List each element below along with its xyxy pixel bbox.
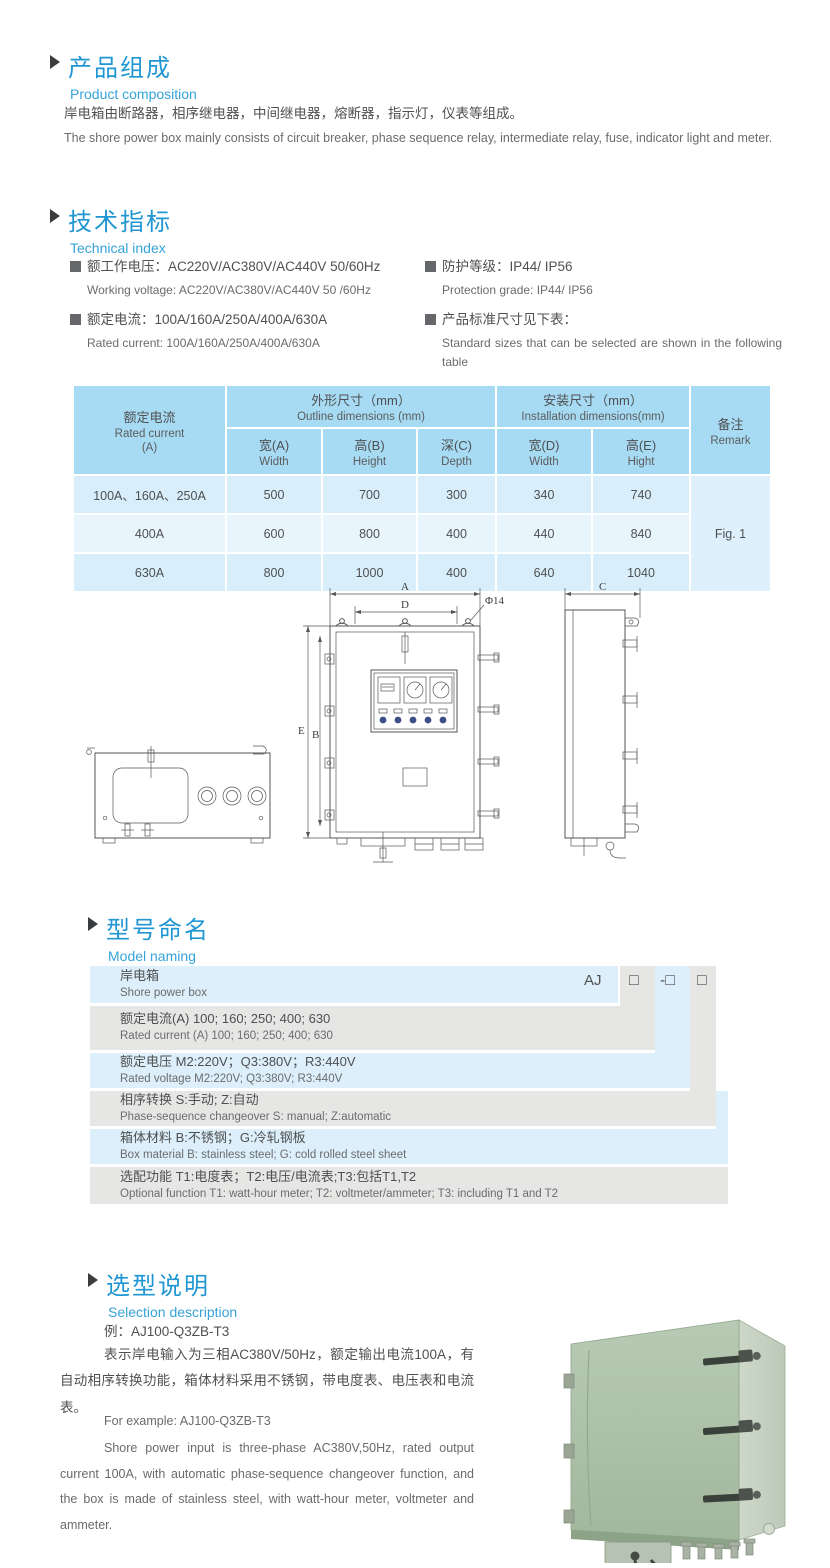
bottom-tray xyxy=(605,1542,671,1563)
cell-width-a: 500 xyxy=(227,476,321,513)
model-row-rated-current: 额定电流(A) 100; 160; 250; 400; 630 Rated cu… xyxy=(90,1006,647,1050)
cell-current: 400A xyxy=(74,515,225,552)
dim-label-D: D xyxy=(401,599,409,611)
section-selection-description-header: 选型说明 Selection description xyxy=(88,1266,237,1320)
cell-height-e: 740 xyxy=(593,476,689,513)
header-outline-dimensions: 外形尺寸（mm） Outline dimensions (mm) xyxy=(227,386,495,427)
section-arrow-icon xyxy=(88,1273,98,1287)
header-rated-current: 额定电流 Rated current (A) xyxy=(74,386,225,474)
model-row-phase-changeover: 相序转换 S:手动; Z:自动 Phase-sequence changeove… xyxy=(90,1091,716,1126)
instrument-panel xyxy=(371,670,457,732)
section-arrow-icon xyxy=(50,55,60,69)
outline-drawing-figure: A D Φ14 xyxy=(65,578,765,888)
model-row-box-material: 箱体材料 B:不锈钢；G:冷轧钢板 Box material B: stainl… xyxy=(90,1129,728,1164)
square-bullet-icon xyxy=(70,314,81,325)
section-model-naming-header: 型号命名 Model naming xyxy=(88,910,210,964)
latch-marks xyxy=(478,653,499,818)
cell-width-a: 600 xyxy=(227,515,321,552)
bottom-knob xyxy=(631,1552,640,1561)
shore-power-box-photo xyxy=(543,1298,828,1563)
technical-drawing: A D Φ14 xyxy=(65,578,765,893)
composition-body-en: The shore power box mainly consists of c… xyxy=(64,129,784,148)
section-arrow-icon xyxy=(50,209,60,223)
catalog-page: 产品组成 Product composition 岸电箱由断路器，相序继电器，中… xyxy=(0,0,830,1568)
dim-label-B: B xyxy=(312,729,319,741)
bottom-fittings-front xyxy=(337,832,483,862)
dimensions-table: 额定电流 Rated current (A) 外形尺寸（mm） Outline … xyxy=(72,384,772,593)
spec-zh-text: 额定电流：100A/160A/250A/400A/630A xyxy=(87,312,327,327)
spec-en-text: Working voltage: AC220V/AC380V/AC440V 50… xyxy=(87,281,430,300)
selection-example-zh: 例：AJ100-Q3ZB-T3 xyxy=(104,1320,229,1340)
spec-zh-text: 防护等级：IP44/ IP56 xyxy=(442,259,573,274)
section-technical-index-header: 技术指标 Technical index xyxy=(50,202,172,256)
header-height-b: 高(B)Height xyxy=(323,429,416,474)
table-row: 400A 600 800 400 440 840 xyxy=(74,515,770,552)
dim-label-A: A xyxy=(401,581,409,593)
model-naming-table: 岸电箱 Shore power box 额定电流(A) 100; 160; 25… xyxy=(90,966,730,1206)
selection-paragraph-zh: 表示岸电输入为三相AC380V/50Hz，额定输出电流100A，有自动相序转换功… xyxy=(60,1342,474,1421)
header-width-d: 宽(D)Width xyxy=(497,429,591,474)
cell-height-e: 840 xyxy=(593,515,689,552)
section-title-zh: 型号命名 xyxy=(106,910,210,945)
bottom-view xyxy=(87,746,270,843)
spec-zh-text: 产品标准尺寸见下表： xyxy=(442,312,577,327)
model-code-box-3: □ xyxy=(697,972,707,990)
section-arrow-icon xyxy=(88,917,98,931)
model-row-rated-voltage: 额定电压 M2:220V；Q3:380V；R3:440V Rated volta… xyxy=(90,1053,690,1088)
tech-specs-right-column: 防护等级：IP44/ IP56 Protection grade: IP44/ … xyxy=(425,258,785,384)
square-bullet-icon xyxy=(425,261,436,272)
cell-width-d: 340 xyxy=(497,476,591,513)
dim-label-E: E xyxy=(298,725,305,737)
square-bullet-icon xyxy=(70,261,81,272)
tech-specs-left-column: 额工作电压：AC220V/AC380V/AC440V 50/60Hz Worki… xyxy=(70,258,430,365)
header-depth-c: 深(C)Depth xyxy=(418,429,495,474)
header-installation-dimensions: 安装尺寸（mm） Installation dimensions(mm) xyxy=(497,386,689,427)
model-code-box-1: □ xyxy=(629,972,639,990)
section-title-zh: 选型说明 xyxy=(106,1266,237,1301)
cell-height-b: 800 xyxy=(323,515,416,552)
cell-current: 100A、160A、250A xyxy=(74,476,225,513)
model-prefix: AJ xyxy=(584,972,602,989)
header-height-e: 高(E)Hight xyxy=(593,429,689,474)
spec-en-text: Rated current: 100A/160A/250A/400A/630A xyxy=(87,334,430,353)
section-title-zh: 产品组成 xyxy=(68,48,197,83)
model-code-box-2: -□ xyxy=(660,972,675,990)
square-bullet-icon xyxy=(425,314,436,325)
spec-standard-sizes: 产品标准尺寸见下表： Standard sizes that can be se… xyxy=(425,311,785,371)
product-photo xyxy=(543,1298,828,1568)
cell-width-d: 440 xyxy=(497,515,591,552)
header-remark: 备注 Remark xyxy=(691,386,770,474)
section-product-composition-header: 产品组成 Product composition xyxy=(50,48,197,102)
dim-label-phi14: Φ14 xyxy=(485,595,505,607)
section-title-en: Technical index xyxy=(70,240,172,256)
table-row: 100A、160A、250A 500 700 300 340 740 Fig. … xyxy=(74,476,770,513)
spec-en-text: Protection grade: IP44/ IP56 xyxy=(442,281,785,300)
spec-en-text: Standard sizes that can be selected are … xyxy=(442,334,782,371)
cell-depth-c: 300 xyxy=(418,476,495,513)
mounting-lugs xyxy=(336,619,474,626)
selection-example-en: For example: AJ100-Q3ZB-T3 xyxy=(104,1414,271,1428)
section-title-en: Model naming xyxy=(108,948,210,964)
dim-label-C: C xyxy=(599,581,606,593)
section-title-en: Selection description xyxy=(108,1304,237,1320)
header-width-a: 宽(A)Width xyxy=(227,429,321,474)
model-row-optional-function: 选配功能 T1:电度表；T2:电压/电流表;T3:包括T1,T2 Optiona… xyxy=(90,1167,728,1204)
spec-working-voltage: 额工作电压：AC220V/AC380V/AC440V 50/60Hz Worki… xyxy=(70,258,430,299)
spec-zh-text: 额工作电压：AC220V/AC380V/AC440V 50/60Hz xyxy=(87,259,380,274)
selection-paragraph-en: Shore power input is three-phase AC380V,… xyxy=(60,1436,474,1539)
spec-protection-grade: 防护等级：IP44/ IP56 Protection grade: IP44/ … xyxy=(425,258,785,299)
cell-remark: Fig. 1 xyxy=(691,476,770,591)
spec-rated-current: 额定电流：100A/160A/250A/400A/630A Rated curr… xyxy=(70,311,430,352)
cell-depth-c: 400 xyxy=(418,515,495,552)
section-title-en: Product composition xyxy=(70,86,197,102)
cell-height-b: 700 xyxy=(323,476,416,513)
model-row-shore-power-box: 岸电箱 Shore power box xyxy=(90,966,618,1003)
bottom-fittings-side xyxy=(571,838,626,858)
composition-body-zh: 岸电箱由断路器，相序继电器，中间继电器，熔断器，指示灯，仪表等组成。 xyxy=(64,104,764,124)
section-title-zh: 技术指标 xyxy=(68,202,172,237)
side-vent xyxy=(764,1524,775,1535)
